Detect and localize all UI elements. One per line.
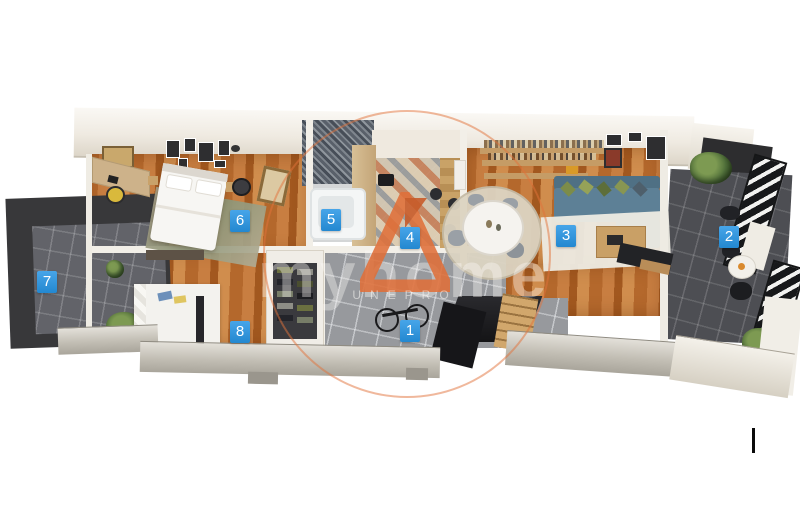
picture-frame <box>218 140 230 156</box>
room-label-1: 1 <box>400 320 420 342</box>
room-label-7: 7 <box>37 271 57 293</box>
picture-frame <box>646 136 666 160</box>
wall-notch <box>248 372 278 385</box>
duvet-fold <box>155 204 221 218</box>
picture-frame <box>214 160 226 168</box>
picture-frame-red <box>606 150 620 166</box>
pillow <box>165 174 193 192</box>
room-label-2: 2 <box>719 226 739 248</box>
wall-shelf <box>146 250 204 260</box>
picture-frame <box>184 138 196 152</box>
room-label-6: 6 <box>230 210 250 232</box>
blanket-pattern <box>174 295 187 304</box>
tick-mark <box>752 428 755 453</box>
room-label-5: 5 <box>321 209 341 231</box>
picture-frame <box>606 134 622 146</box>
bottom-wall-right <box>505 330 677 377</box>
picture-frame <box>166 140 180 158</box>
desk-chair <box>106 186 125 204</box>
room-label-4: 4 <box>400 227 420 249</box>
watermark-logo-text: UNEPRO <box>330 288 480 302</box>
bed-double <box>150 163 229 251</box>
wall-left-edge <box>86 154 92 350</box>
balcony-table-round <box>728 255 756 279</box>
blanket-edge <box>196 296 204 346</box>
balcony-chair <box>720 206 740 220</box>
picture-frame <box>628 132 642 142</box>
room-label-8: 8 <box>230 321 250 343</box>
table-decor <box>738 263 745 270</box>
nightstand <box>148 176 158 185</box>
shelf-box <box>566 166 578 174</box>
ceiling-lamp-icon <box>231 145 240 152</box>
round-chair <box>232 178 251 196</box>
blanket-pattern <box>157 291 172 302</box>
pillow <box>195 179 223 197</box>
plant-icon <box>106 260 124 278</box>
room-label-3: 3 <box>556 225 576 247</box>
picture-frame <box>198 142 214 162</box>
balcony-chair <box>730 282 752 300</box>
floorplan-render: myhome UNEPRO 1 2 3 4 5 6 7 8 <box>0 0 800 528</box>
plant-icon <box>690 152 732 184</box>
